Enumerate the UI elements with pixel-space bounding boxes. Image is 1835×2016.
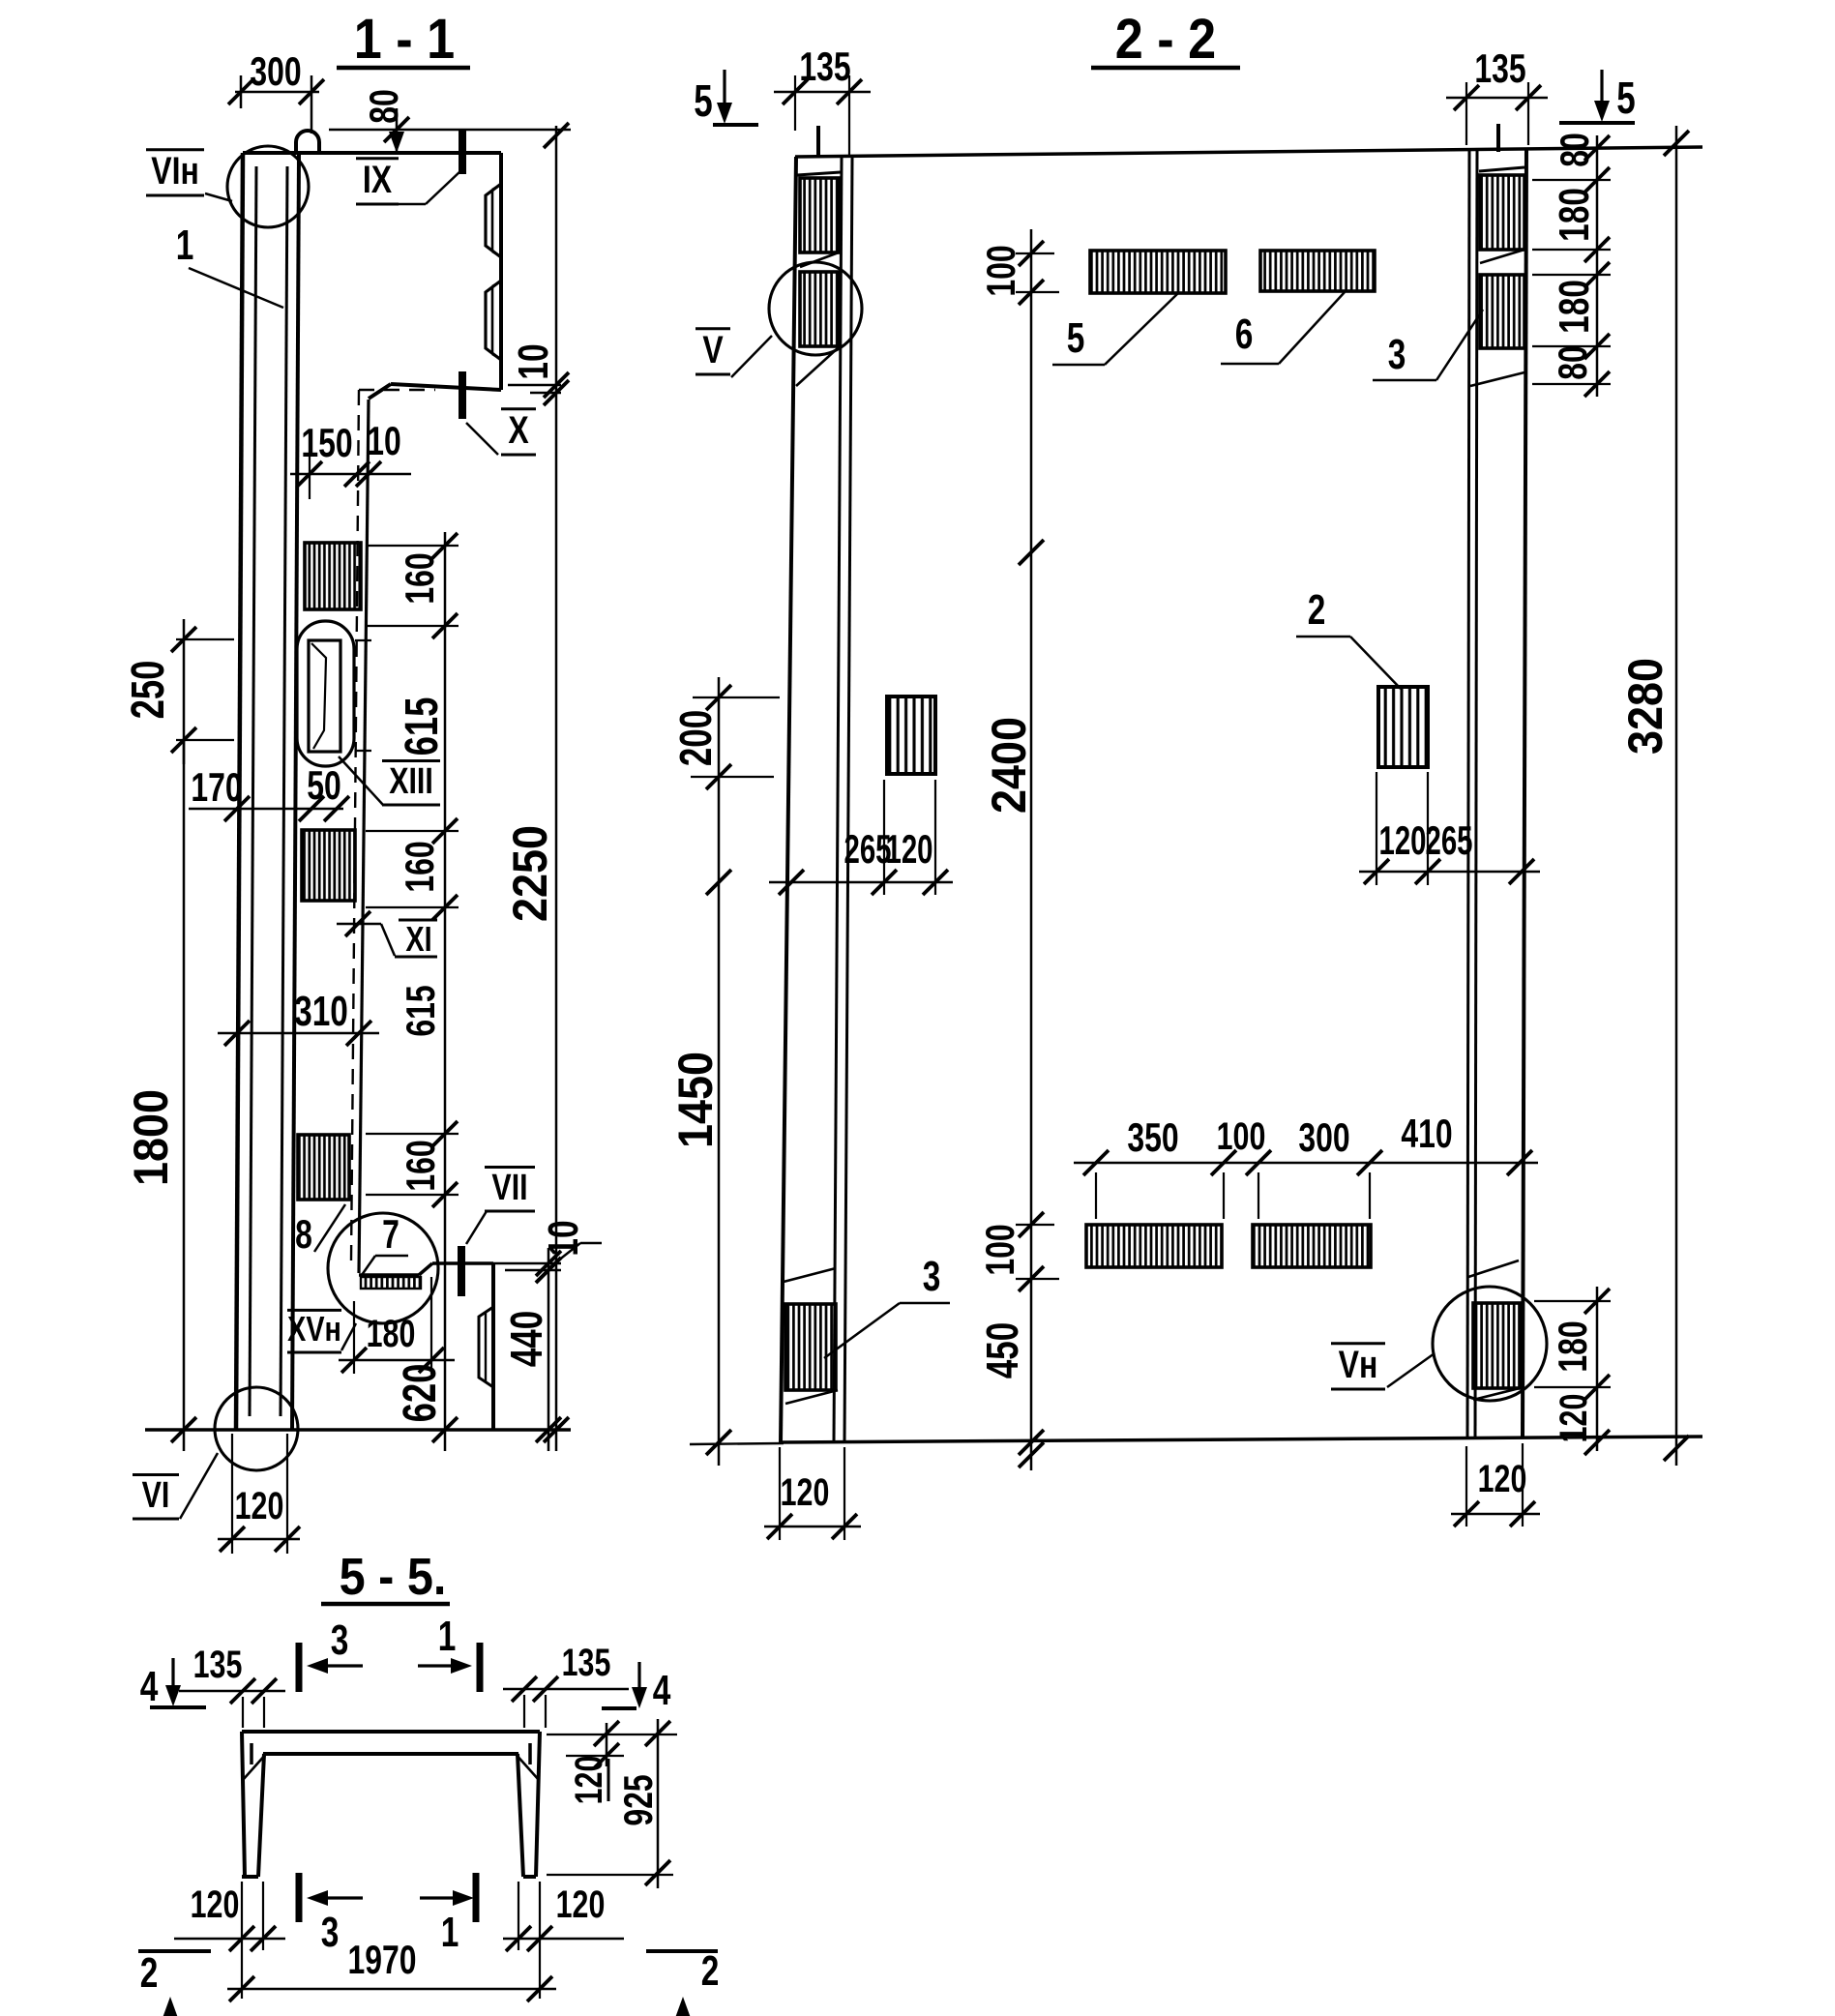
svg-text:XI: XI bbox=[405, 919, 431, 959]
svg-text:120: 120 bbox=[781, 1470, 830, 1514]
svg-text:5: 5 bbox=[1616, 73, 1635, 123]
svg-text:180: 180 bbox=[1552, 280, 1598, 334]
svg-text:2: 2 bbox=[701, 1948, 720, 1995]
svg-text:120: 120 bbox=[191, 1883, 240, 1926]
svg-text:160: 160 bbox=[398, 1140, 443, 1191]
svg-text:VII: VII bbox=[491, 1168, 527, 1208]
svg-text:5 - 5.: 5 - 5. bbox=[340, 1547, 447, 1606]
svg-text:160: 160 bbox=[397, 841, 442, 892]
svg-text:450: 450 bbox=[977, 1322, 1027, 1379]
svg-text:2 - 2: 2 - 2 bbox=[1115, 7, 1216, 70]
svg-text:1970: 1970 bbox=[347, 1937, 416, 1982]
svg-text:VIн: VIн bbox=[151, 149, 199, 193]
svg-text:2400: 2400 bbox=[983, 717, 1037, 814]
svg-text:1800: 1800 bbox=[125, 1089, 179, 1186]
svg-text:2: 2 bbox=[140, 1950, 159, 1997]
svg-text:3: 3 bbox=[1388, 332, 1406, 378]
svg-text:250: 250 bbox=[122, 661, 174, 720]
svg-text:160: 160 bbox=[397, 552, 442, 604]
svg-text:80: 80 bbox=[361, 89, 406, 124]
svg-text:300: 300 bbox=[1298, 1114, 1349, 1160]
svg-text:180: 180 bbox=[1550, 1320, 1595, 1372]
svg-text:7: 7 bbox=[382, 1211, 400, 1257]
svg-text:4: 4 bbox=[140, 1664, 159, 1710]
svg-text:120: 120 bbox=[885, 826, 932, 873]
svg-text:120: 120 bbox=[1552, 1394, 1595, 1443]
svg-text:3: 3 bbox=[321, 1910, 340, 1956]
svg-text:120: 120 bbox=[1478, 1457, 1527, 1500]
svg-text:265: 265 bbox=[1425, 817, 1472, 864]
svg-text:1 - 1: 1 - 1 bbox=[354, 7, 455, 70]
svg-text:1: 1 bbox=[176, 222, 194, 269]
svg-text:925: 925 bbox=[615, 1774, 661, 1825]
svg-text:100: 100 bbox=[1217, 1114, 1266, 1158]
svg-text:615: 615 bbox=[398, 985, 443, 1036]
svg-text:3: 3 bbox=[923, 1254, 941, 1300]
svg-text:170: 170 bbox=[191, 764, 242, 810]
svg-text:310: 310 bbox=[294, 989, 348, 1035]
svg-text:5: 5 bbox=[694, 75, 712, 126]
svg-text:120: 120 bbox=[556, 1883, 606, 1926]
svg-text:350: 350 bbox=[1127, 1114, 1178, 1160]
svg-text:180: 180 bbox=[1552, 188, 1598, 242]
svg-text:615: 615 bbox=[396, 697, 448, 756]
svg-text:IX: IX bbox=[363, 158, 392, 201]
svg-text:135: 135 bbox=[193, 1643, 243, 1686]
svg-text:440: 440 bbox=[501, 1311, 551, 1367]
svg-text:8: 8 bbox=[295, 1211, 312, 1257]
svg-text:3280: 3280 bbox=[1619, 658, 1673, 755]
svg-text:120: 120 bbox=[235, 1484, 284, 1527]
svg-text:1: 1 bbox=[441, 1910, 459, 1956]
svg-text:410: 410 bbox=[1401, 1111, 1452, 1156]
svg-text:VI: VI bbox=[142, 1475, 170, 1516]
svg-text:2250: 2250 bbox=[504, 825, 558, 922]
svg-text:80: 80 bbox=[1550, 345, 1595, 380]
svg-text:XVн: XVн bbox=[287, 1309, 341, 1349]
svg-text:6: 6 bbox=[1235, 311, 1254, 358]
svg-text:135: 135 bbox=[562, 1641, 611, 1684]
svg-text:3: 3 bbox=[331, 1617, 349, 1664]
svg-text:XIII: XIII bbox=[389, 761, 433, 802]
svg-text:180: 180 bbox=[367, 1312, 416, 1355]
svg-text:80: 80 bbox=[1552, 133, 1597, 167]
svg-text:135: 135 bbox=[1474, 45, 1525, 91]
svg-text:4: 4 bbox=[653, 1668, 671, 1714]
svg-text:200: 200 bbox=[670, 710, 721, 766]
svg-text:X: X bbox=[508, 408, 528, 452]
svg-text:1450: 1450 bbox=[669, 1052, 724, 1148]
svg-text:300: 300 bbox=[250, 48, 301, 94]
svg-text:10: 10 bbox=[511, 343, 557, 379]
svg-text:100: 100 bbox=[977, 1224, 1022, 1275]
svg-text:50: 50 bbox=[307, 762, 341, 808]
svg-text:V: V bbox=[702, 328, 723, 371]
svg-text:10: 10 bbox=[367, 418, 401, 463]
svg-text:5: 5 bbox=[1067, 315, 1085, 362]
svg-text:120: 120 bbox=[1378, 817, 1426, 864]
svg-text:1: 1 bbox=[438, 1614, 457, 1660]
svg-text:2: 2 bbox=[1308, 587, 1326, 634]
svg-text:120: 120 bbox=[567, 1756, 610, 1805]
svg-text:Vн: Vн bbox=[1339, 1343, 1378, 1386]
